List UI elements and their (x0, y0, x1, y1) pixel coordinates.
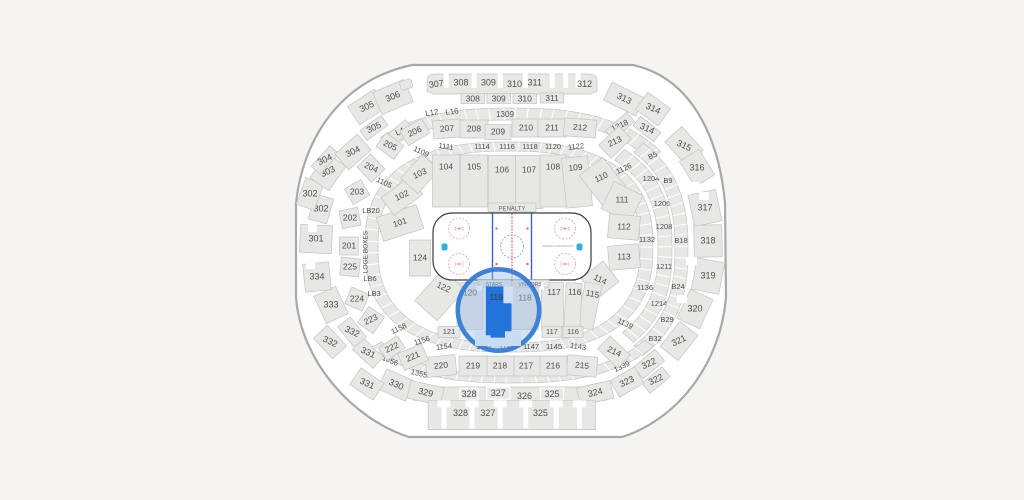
svg-text:211: 211 (545, 122, 559, 132)
svg-text:116: 116 (567, 327, 579, 336)
svg-text:328: 328 (461, 389, 476, 399)
svg-text:121: 121 (443, 327, 456, 336)
svg-text:212: 212 (573, 122, 588, 133)
svg-text:111: 111 (616, 194, 629, 204)
svg-text:LOGE BOXES: LOGE BOXES (363, 230, 370, 273)
svg-text:325: 325 (533, 408, 548, 418)
svg-text:B32: B32 (648, 334, 661, 343)
svg-text:1208: 1208 (656, 222, 673, 231)
svg-text:107: 107 (522, 164, 536, 174)
svg-text:1145: 1145 (546, 342, 562, 351)
svg-text:1211: 1211 (656, 262, 672, 271)
svg-text:309: 309 (492, 93, 506, 103)
svg-text:320: 320 (687, 303, 702, 313)
svg-text:1116: 1116 (499, 142, 515, 151)
svg-text:1118: 1118 (522, 142, 538, 151)
svg-text:311: 311 (528, 77, 542, 87)
svg-text:220: 220 (433, 360, 448, 371)
svg-text:325: 325 (544, 389, 559, 399)
svg-text:209: 209 (491, 126, 505, 136)
svg-text:1122: 1122 (567, 141, 584, 152)
svg-text:225: 225 (343, 261, 357, 271)
svg-text:224: 224 (350, 293, 364, 303)
svg-text:302: 302 (302, 188, 317, 198)
svg-text:218: 218 (493, 360, 507, 370)
svg-text:208: 208 (467, 123, 481, 133)
svg-text:334: 334 (309, 271, 324, 281)
svg-text:B18: B18 (674, 236, 687, 245)
svg-text:207: 207 (440, 123, 455, 134)
svg-text:316: 316 (689, 162, 704, 172)
svg-text:1214: 1214 (651, 299, 668, 308)
svg-text:216: 216 (546, 360, 560, 370)
svg-text:B29: B29 (660, 315, 673, 324)
svg-text:308: 308 (466, 93, 480, 103)
svg-text:PENALTY: PENALTY (499, 207, 526, 213)
svg-text:109: 109 (568, 162, 583, 173)
svg-text:116: 116 (568, 286, 582, 297)
svg-text:1136: 1136 (637, 283, 653, 292)
svg-text:328: 328 (453, 408, 468, 418)
svg-text:327: 327 (491, 388, 506, 398)
svg-text:326: 326 (517, 391, 532, 401)
svg-text:318: 318 (700, 235, 715, 245)
svg-text:AMERICAN AIRLINES CTR: AMERICAN AIRLINES CTR (543, 245, 574, 248)
svg-text:105: 105 (467, 161, 481, 171)
svg-text:106: 106 (495, 164, 509, 174)
svg-text:1120: 1120 (545, 142, 561, 151)
svg-text:1132: 1132 (639, 235, 655, 244)
svg-text:307: 307 (428, 78, 444, 90)
svg-text:L16: L16 (445, 106, 460, 116)
svg-text:LB3: LB3 (367, 289, 380, 298)
svg-text:203: 203 (350, 186, 364, 196)
svg-text:1154: 1154 (435, 341, 452, 352)
svg-text:108: 108 (546, 161, 560, 171)
svg-text:217: 217 (519, 360, 533, 370)
svg-text:117: 117 (547, 287, 561, 297)
svg-text:317: 317 (697, 202, 712, 212)
svg-text:B24: B24 (671, 282, 684, 291)
svg-text:1206: 1206 (654, 199, 671, 208)
svg-text:B9: B9 (663, 176, 672, 185)
svg-text:310: 310 (507, 79, 522, 89)
svg-text:1114: 1114 (474, 142, 490, 151)
svg-text:LB6: LB6 (363, 274, 376, 283)
svg-text:202: 202 (343, 212, 357, 222)
svg-text:210: 210 (519, 122, 533, 132)
svg-text:1309: 1309 (496, 110, 514, 119)
svg-text:308: 308 (453, 78, 468, 88)
svg-text:333: 333 (323, 299, 338, 309)
svg-text:113: 113 (617, 251, 631, 261)
svg-text:201: 201 (342, 240, 356, 250)
svg-text:119: 119 (489, 292, 503, 302)
svg-text:301: 301 (308, 233, 323, 243)
svg-text:310: 310 (518, 93, 532, 103)
svg-text:219: 219 (466, 360, 480, 370)
svg-text:309: 309 (481, 78, 496, 88)
svg-text:124: 124 (413, 252, 427, 262)
svg-text:327: 327 (480, 408, 495, 418)
svg-text:117: 117 (546, 327, 558, 336)
svg-text:104: 104 (439, 161, 453, 171)
svg-text:LB20: LB20 (362, 206, 380, 215)
svg-text:112: 112 (617, 221, 631, 231)
svg-text:311: 311 (545, 93, 559, 103)
svg-text:312: 312 (577, 79, 592, 89)
svg-text:319: 319 (700, 270, 715, 280)
svg-text:215: 215 (575, 360, 590, 371)
